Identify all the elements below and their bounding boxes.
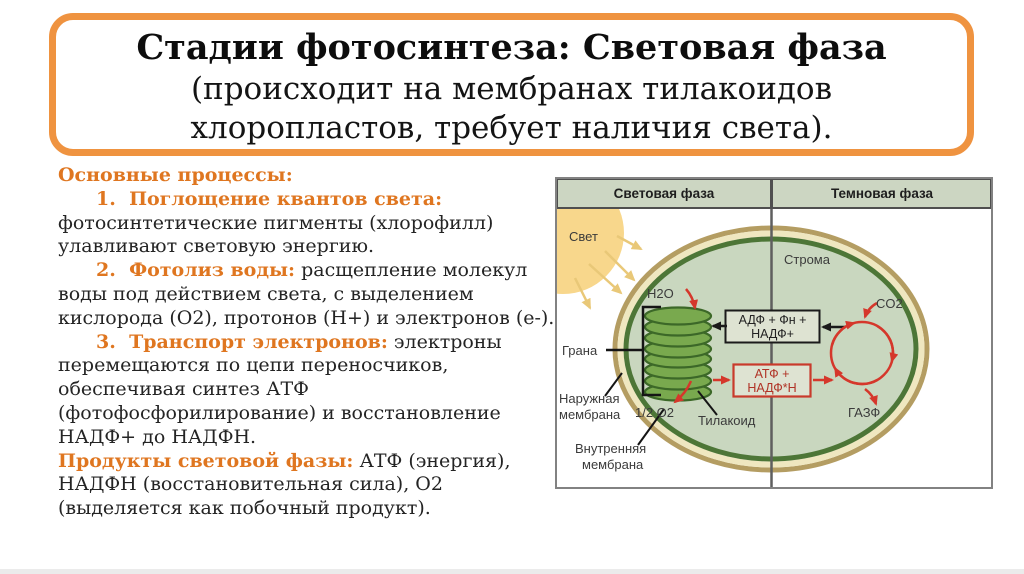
photosynthesis-diagram: Световая фаза Темновая фаза Свет Строма … bbox=[555, 177, 993, 489]
atp-box-line1: АТФ + bbox=[755, 367, 790, 381]
grana-stack bbox=[645, 308, 711, 401]
text-line: воды под действием света, с выделением bbox=[58, 283, 558, 307]
grana-label: Грана bbox=[562, 343, 598, 358]
co2-label: CO2 bbox=[876, 296, 903, 311]
thylakoid-disk bbox=[645, 308, 711, 325]
title-box: Стадии фотосинтеза: Световая фаза (проис… bbox=[49, 13, 974, 156]
page-title: Стадии фотосинтеза: Световая фаза bbox=[56, 26, 967, 70]
g3p-label: ГАЗФ bbox=[848, 405, 880, 420]
outer-membrane-label-line2: мембрана bbox=[559, 407, 621, 422]
text-line: НАДФ+ до НАДФН. bbox=[58, 426, 558, 450]
text-line: Продукты световой фазы: АТФ (энергия), bbox=[58, 450, 558, 474]
inner-membrane-label-line1: Внутренняя bbox=[575, 441, 646, 456]
header-light-phase: Световая фаза bbox=[614, 186, 715, 201]
body-text: Основные процессы: 1. Поглощение квантов… bbox=[58, 164, 558, 521]
text-line: 3. Транспорт электронов: электроны bbox=[58, 331, 558, 355]
text-line: (фотофосфорилирование) и восстановление bbox=[58, 402, 558, 426]
inner-membrane-label-line2: мембрана bbox=[582, 457, 644, 472]
text-line: (выделяется как побочный продукт). bbox=[58, 497, 558, 521]
text-line: 2. Фотолиз воды: расщепление молекул bbox=[58, 259, 558, 283]
text-line: кислорода (О2), протонов (Н+) и электрон… bbox=[58, 307, 558, 331]
header-dark-phase: Темновая фаза bbox=[831, 186, 934, 201]
adp-box-line2: НАДФ+ bbox=[751, 327, 794, 341]
h2o-label: H2O bbox=[647, 286, 674, 301]
adp-box-line1: АДФ + Фн + bbox=[739, 313, 807, 327]
page-subtitle-line2: хлоропластов, требует наличия света). bbox=[56, 109, 967, 148]
text-line: НАДФН (восстановительная сила), О2 bbox=[58, 473, 558, 497]
text-line: улавливают световую энергию. bbox=[58, 235, 558, 259]
slide: Стадии фотосинтеза: Световая фаза (проис… bbox=[0, 0, 1024, 574]
text-line: 1. Поглощение квантов света: bbox=[58, 188, 558, 212]
o2-label: 1/2 O2 bbox=[635, 405, 674, 420]
slide-edge bbox=[0, 569, 1024, 574]
atp-box-line2: НАДФ*Н bbox=[747, 381, 796, 395]
text-line: Основные процессы: bbox=[58, 164, 558, 188]
thylakoid-label: Тилакоид bbox=[698, 413, 756, 428]
text-line: фотосинтетические пигменты (хлорофилл) bbox=[58, 212, 558, 236]
stroma-label: Строма bbox=[784, 252, 831, 267]
text-line: обеспечивая синтез АТФ bbox=[58, 378, 558, 402]
page-subtitle-line1: (происходит на мембранах тилакоидов bbox=[56, 70, 967, 109]
text-line: перемещаются по цепи переносчиков, bbox=[58, 354, 558, 378]
light-label: Свет bbox=[569, 229, 598, 244]
outer-membrane-label-line1: Наружная bbox=[559, 391, 620, 406]
